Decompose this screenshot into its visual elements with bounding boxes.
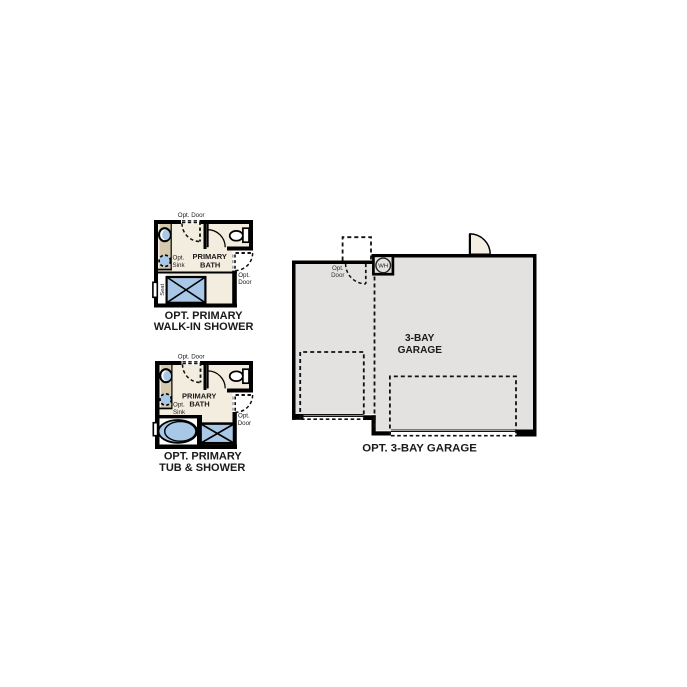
svg-text:Opt.: Opt. [173, 254, 185, 261]
svg-text:OPT. PRIMARY: OPT. PRIMARY [164, 451, 242, 463]
svg-text:PRIMARY: PRIMARY [193, 252, 227, 261]
svg-text:OPT. 3-BAY GARAGE: OPT. 3-BAY GARAGE [362, 442, 477, 454]
svg-text:Opt. Door: Opt. Door [178, 212, 205, 219]
svg-text:3-BAY: 3-BAY [405, 333, 435, 344]
svg-text:Door: Door [331, 272, 344, 279]
svg-text:Opt.: Opt. [332, 265, 344, 272]
svg-text:Seat: Seat [160, 283, 166, 295]
svg-text:WALK-IN SHOWER: WALK-IN SHOWER [154, 321, 254, 333]
svg-text:BATH: BATH [189, 400, 209, 409]
svg-text:BATH: BATH [200, 261, 220, 270]
svg-text:Opt.: Opt. [173, 402, 185, 409]
svg-text:Sink: Sink [173, 262, 186, 269]
svg-text:Door: Door [238, 279, 251, 286]
svg-text:GARAGE: GARAGE [398, 345, 443, 356]
svg-text:Opt.: Opt. [238, 412, 250, 419]
svg-text:Door: Door [238, 420, 251, 427]
svg-text:TUB & SHOWER: TUB & SHOWER [159, 462, 245, 474]
svg-text:WH: WH [378, 264, 388, 270]
svg-text:Opt. Door: Opt. Door [178, 354, 205, 361]
